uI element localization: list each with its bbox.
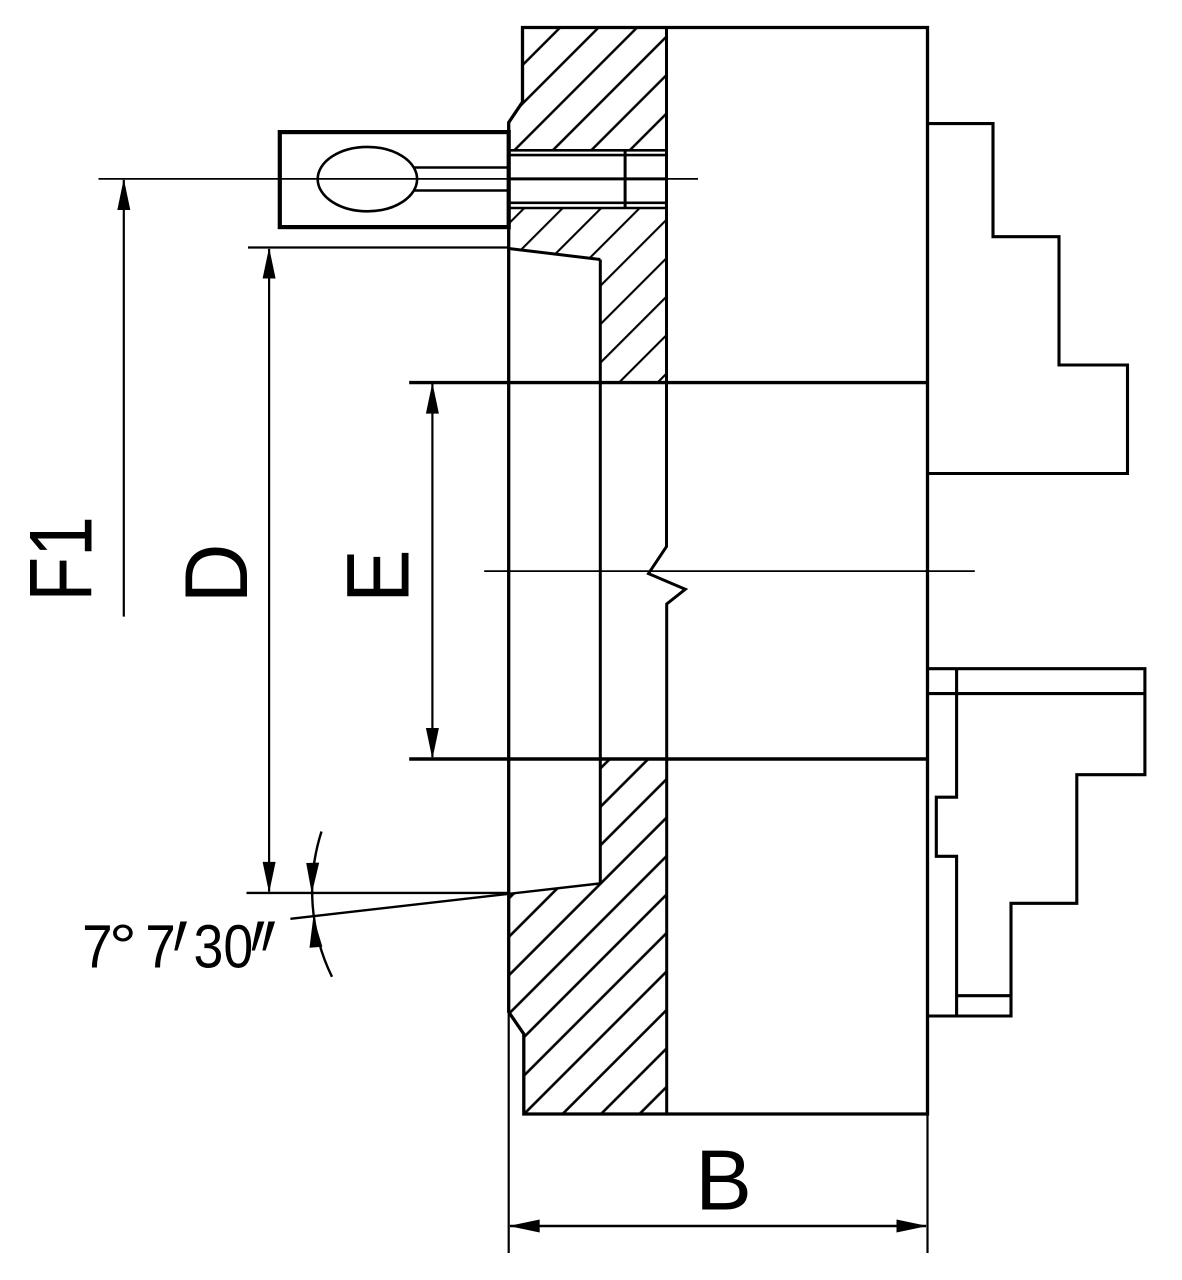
svg-text:°: ° bbox=[109, 912, 137, 981]
svg-text:D: D bbox=[167, 544, 266, 604]
svg-text:E: E bbox=[327, 549, 427, 602]
svg-text:30: 30 bbox=[194, 913, 254, 981]
svg-text:B: B bbox=[695, 1134, 752, 1229]
svg-text:F1: F1 bbox=[12, 516, 111, 601]
svg-text:7: 7 bbox=[145, 913, 176, 981]
